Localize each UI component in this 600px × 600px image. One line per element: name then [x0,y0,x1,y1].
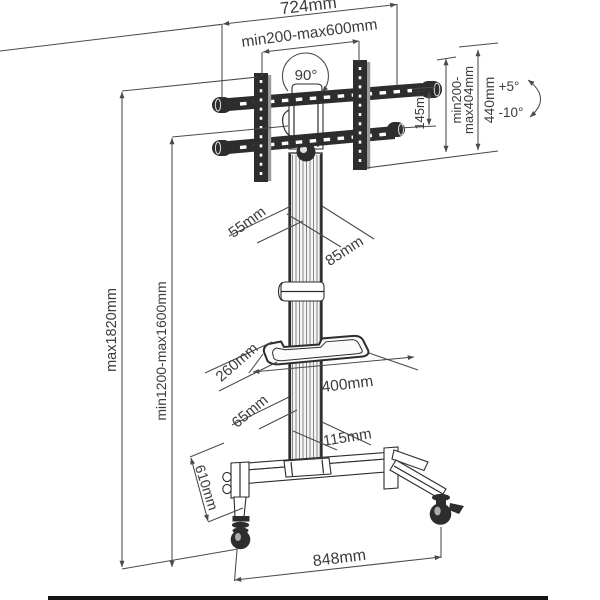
left-caster-plate [233,516,250,522]
floor-reference-line [122,549,238,569]
label-shelf-width: 400mm [321,373,374,396]
left-leg-knob-1 [223,472,231,481]
image-bottom-border [48,596,548,600]
tv-stand-dimension-drawing: 724mm min200-max600mm 90° 145mm min200- … [0,0,600,600]
label-vesa-width: min200-max600mm [240,16,378,51]
left-front-leg [234,497,246,517]
label-tilt-down: -10° [499,105,524,120]
left-leg-knob-2 [223,484,231,493]
label-max-height: max1820mm [104,288,120,372]
label-height-range: min1200-max1600mm [153,281,169,420]
label-swivel: 90° [295,67,318,84]
casters [231,494,464,549]
diagram-canvas: 724mm min200-max600mm 90° 145mm min200- … [0,0,600,600]
label-column-base-width: 115mm [322,425,373,449]
label-overall-width: 724mm [279,0,337,18]
label-rail-spacing: 145mm [412,86,427,129]
label-leg-depth: 610mm [192,463,222,512]
base [223,447,446,517]
label-column-depth: 55mm [225,203,269,241]
right-caster-wheel [430,503,452,525]
label-vesa-height-2: max404mm [461,66,476,134]
label-tilt-up: +5° [499,79,520,94]
label-column-width: 85mm [322,233,366,270]
tilt-arrow [528,80,541,117]
column [289,153,322,464]
label-shelf-depth: 260mm [213,340,262,386]
height-adjust-collar [279,282,325,301]
right-caster-brake [449,503,464,514]
left-caster-wheel [231,530,251,550]
label-bracket-height: 440mm [481,77,497,124]
